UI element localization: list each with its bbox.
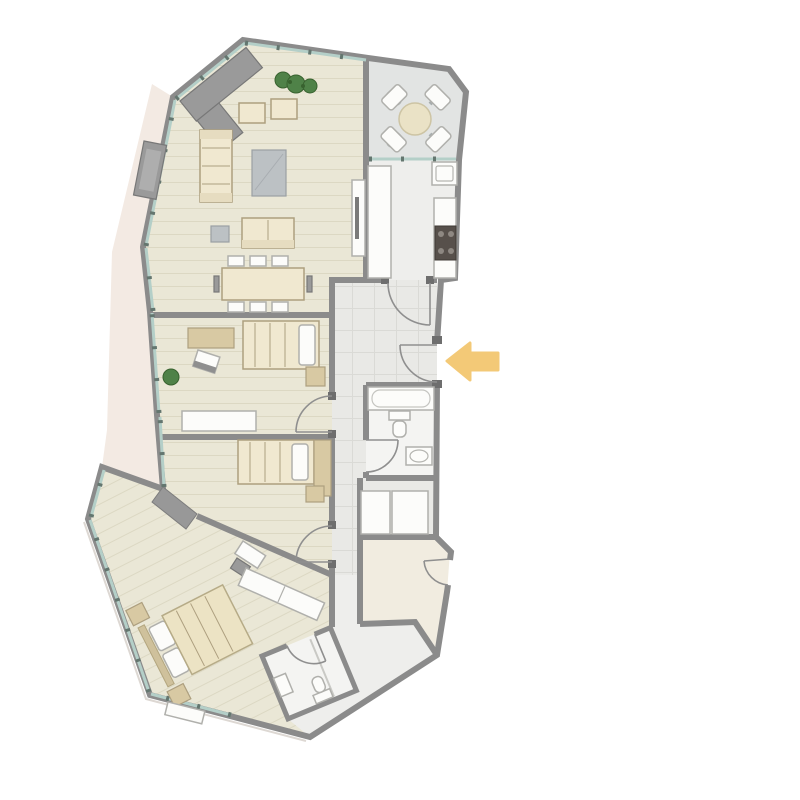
dining-table [222,268,304,300]
sideboard [182,411,256,431]
dining-chair [228,256,244,266]
dining-end-chair [307,276,312,292]
floor-plan-canvas [0,0,800,800]
armchair [271,99,297,119]
coffee-table [252,150,286,196]
desk [188,328,234,348]
single-bed [238,440,314,484]
storage-closets [361,491,428,534]
balcony-round-table [399,103,431,135]
dining-chair [250,302,266,312]
entrance-arrow-icon [447,343,498,380]
sink [406,447,432,465]
kitchen-counter-left [368,166,391,278]
closet [361,491,390,534]
kitchen-sink-unit [432,162,457,185]
armchair [239,103,265,123]
side-table [211,226,229,242]
dining-chair [250,256,266,266]
closet [392,491,428,534]
single-bed [243,321,319,369]
stove-4-burner [435,226,456,260]
pillow [292,444,308,480]
plant [163,369,179,385]
floor-plan-page [0,0,800,800]
dining-chair [272,256,288,266]
bathtub [368,387,434,410]
dining-chair [228,302,244,312]
loveseat [242,218,294,248]
dining-end-chair [214,276,219,292]
sofa [200,130,232,202]
entrance-jamb-top [432,336,442,344]
nightstand [306,486,324,502]
bedroom2-door-jamb [328,521,336,529]
dining-chair [272,302,288,312]
kitchen-door-jamb [426,276,434,284]
tv-sideboard [352,180,365,256]
pillow [299,325,315,365]
nightstand [306,367,325,386]
